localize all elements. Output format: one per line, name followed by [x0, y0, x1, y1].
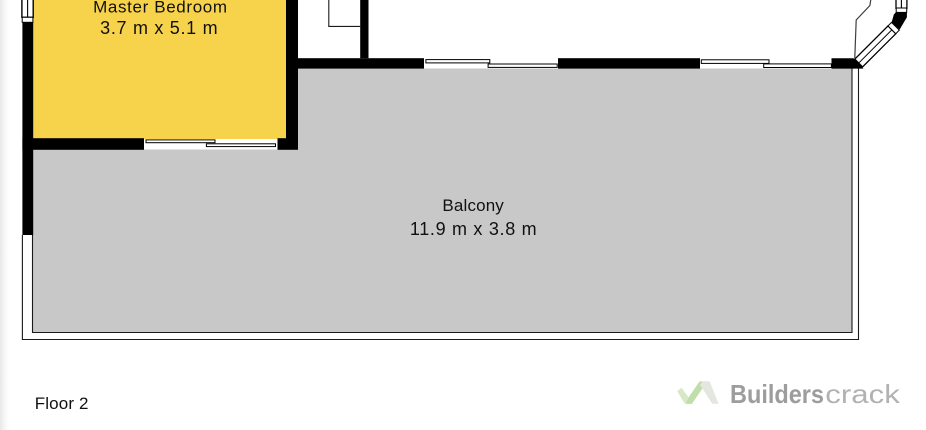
- svg-text:Floor 2: Floor 2: [35, 394, 89, 413]
- svg-text:Master Bedroom: Master Bedroom: [93, 0, 228, 16]
- svg-text:Balcony: Balcony: [442, 196, 504, 215]
- svg-text:Builders: Builders: [730, 379, 824, 409]
- svg-text:crack: crack: [825, 379, 901, 409]
- svg-text:3.7 m x 5.1 m: 3.7 m x 5.1 m: [100, 18, 218, 38]
- svg-text:11.9 m x 3.8 m: 11.9 m x 3.8 m: [410, 219, 538, 239]
